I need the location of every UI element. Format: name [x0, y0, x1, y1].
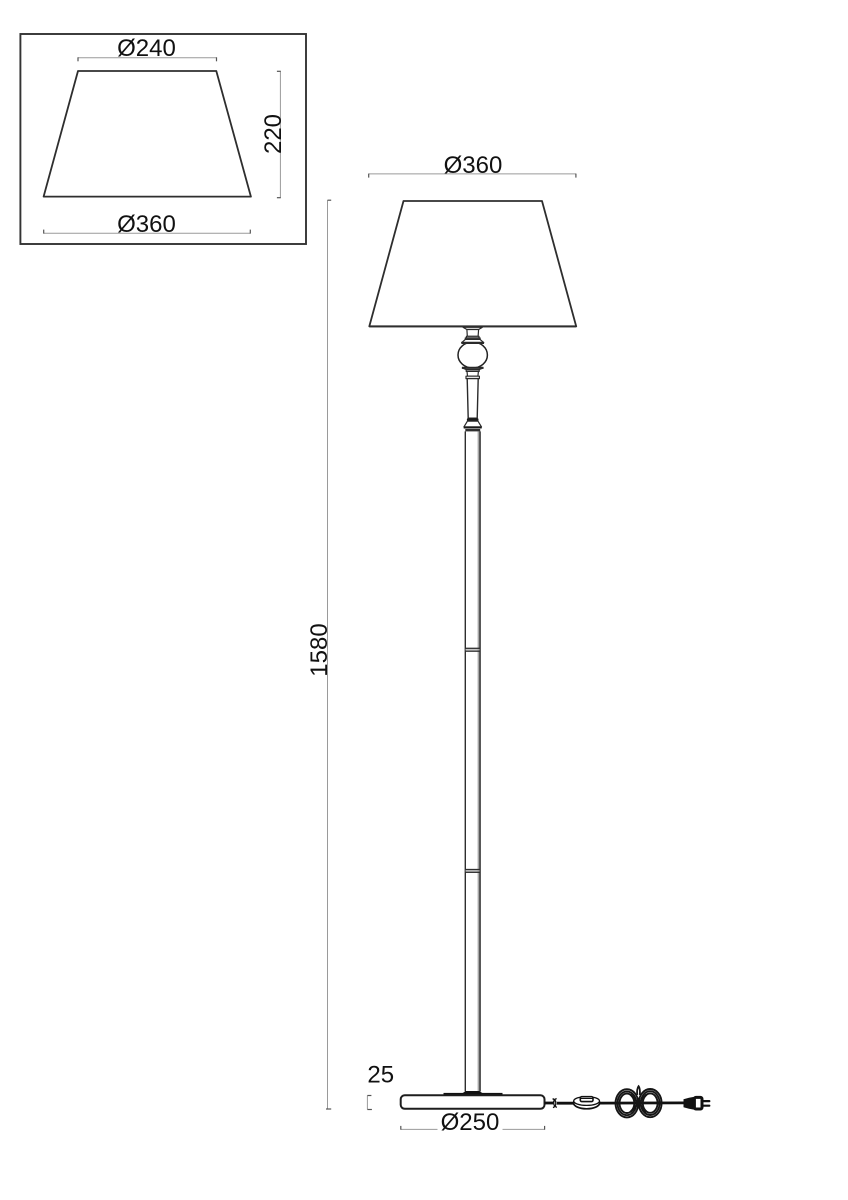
svg-text:Ø360: Ø360: [117, 211, 176, 238]
svg-text:Ø250: Ø250: [441, 1109, 500, 1136]
svg-text:1580: 1580: [306, 623, 333, 676]
svg-text:Ø240: Ø240: [117, 35, 176, 62]
svg-text:25: 25: [367, 1062, 394, 1089]
svg-text:220: 220: [260, 114, 287, 154]
svg-text:Ø360: Ø360: [444, 152, 503, 179]
